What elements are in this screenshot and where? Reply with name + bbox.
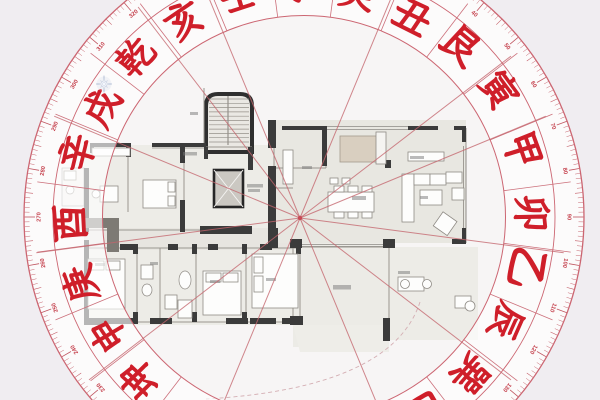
svg-text:270: 270: [37, 212, 43, 222]
svg-text:90: 90: [566, 214, 572, 220]
svg-text:80: 80: [561, 167, 568, 174]
